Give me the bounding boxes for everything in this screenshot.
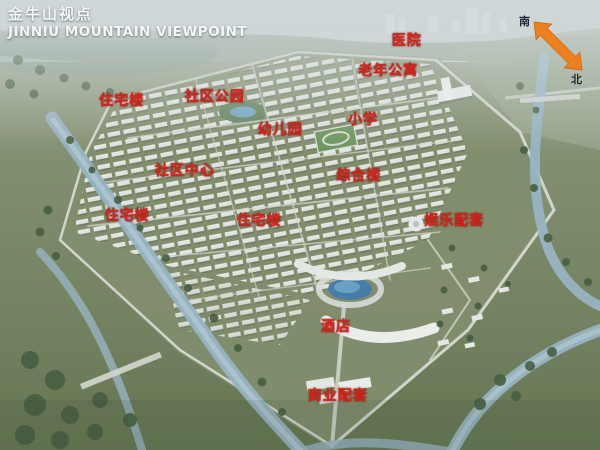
- map-label-primary-school: 小学: [348, 109, 378, 129]
- map-label-layer: 医院老年公寓住宅楼社区公园幼儿园小学社区中心综合楼住宅楼住宅楼娱乐配套酒店商业配…: [0, 0, 600, 450]
- map-label-hotel: 酒店: [321, 316, 351, 336]
- compass-north-label: 北: [571, 71, 582, 87]
- map-label-senior-apartments: 老年公寓: [358, 60, 418, 80]
- page-title-english: JINNIU MOUNTAIN VIEWPOINT: [8, 24, 247, 41]
- map-label-residential-1: 住宅楼: [99, 90, 144, 110]
- map-label-hospital: 医院: [392, 30, 422, 50]
- map-label-community-park: 社区公园: [185, 86, 245, 106]
- map-label-commercial-amenities: 商业配套: [308, 385, 368, 405]
- map-label-residential-3: 住宅楼: [237, 210, 282, 230]
- map-label-entertainment-amenities: 娱乐配套: [424, 210, 484, 230]
- map-label-community-center: 社区中心: [155, 160, 215, 180]
- aerial-viewpoint-image: 医院老年公寓住宅楼社区公园幼儿园小学社区中心综合楼住宅楼住宅楼娱乐配套酒店商业配…: [0, 0, 600, 450]
- compass-south-label: 南: [519, 13, 530, 29]
- map-label-complex-building: 综合楼: [336, 165, 381, 185]
- title-block: 金牛山视点 JINNIU MOUNTAIN VIEWPOINT: [8, 5, 247, 41]
- map-label-kindergarten: 幼儿园: [258, 119, 303, 139]
- page-title-chinese: 金牛山视点: [8, 5, 247, 24]
- map-label-residential-2: 住宅楼: [105, 205, 150, 225]
